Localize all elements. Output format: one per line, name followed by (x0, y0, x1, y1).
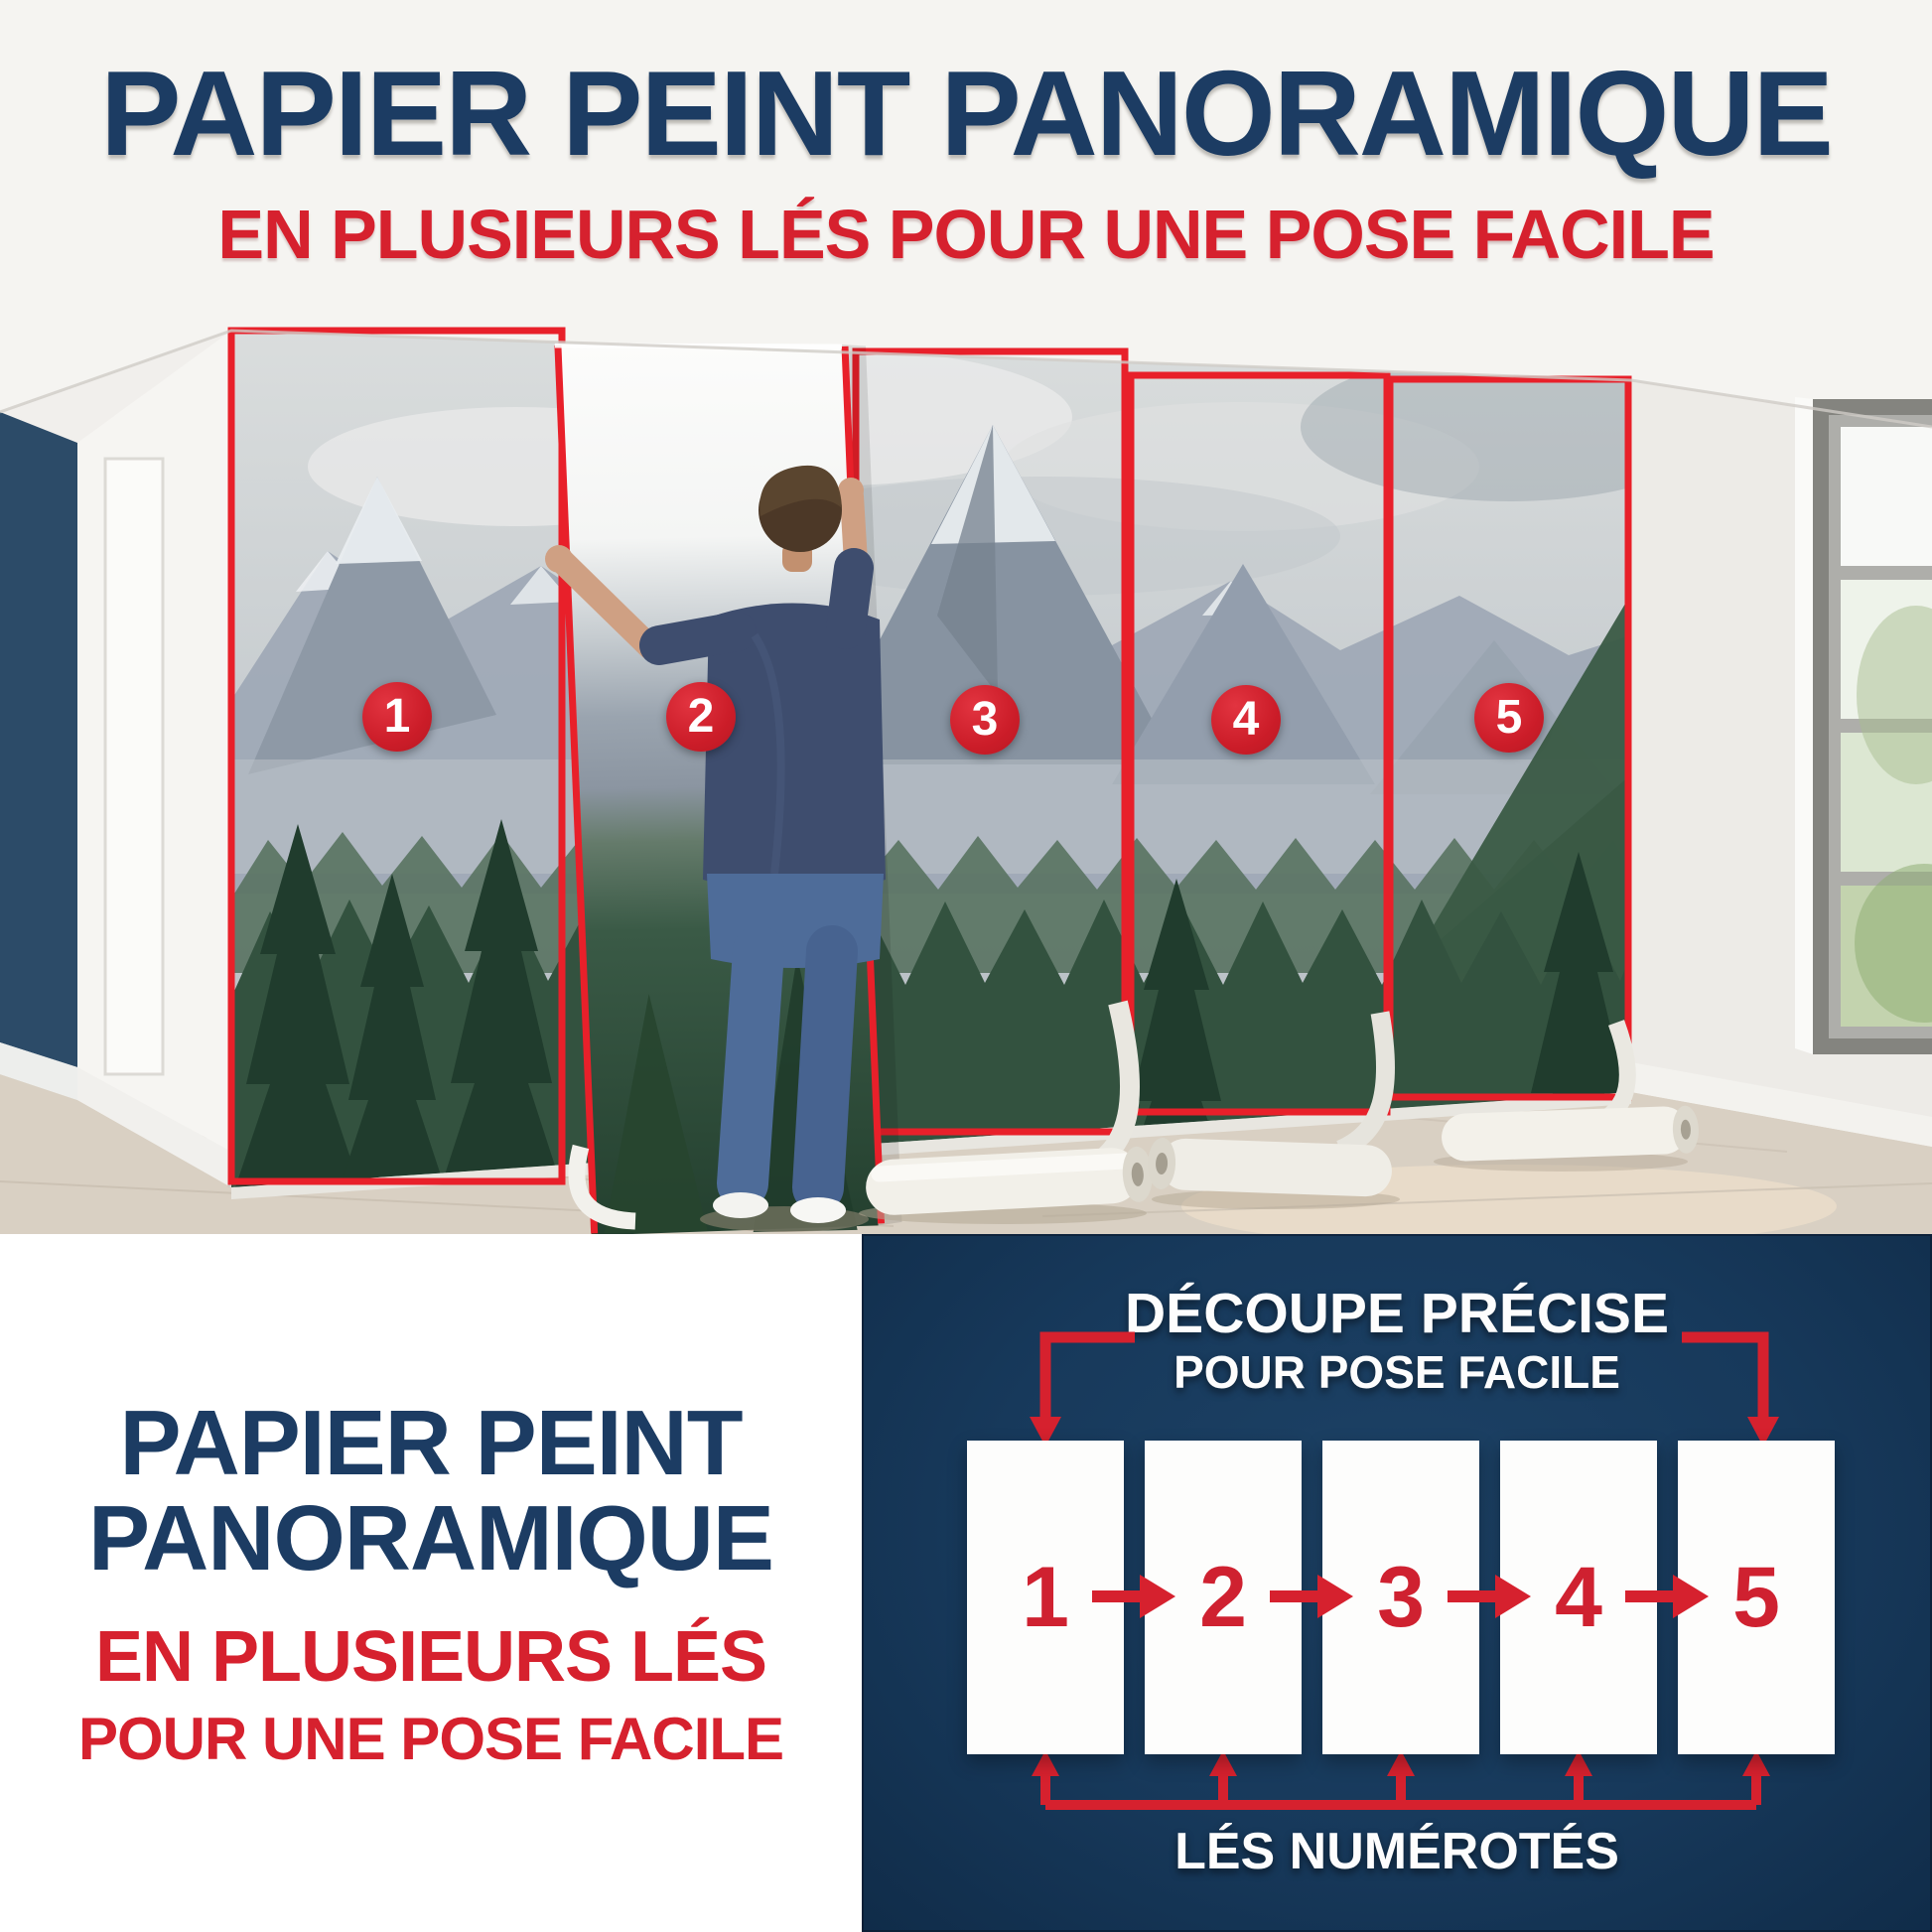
diagram-strip-number: 2 (1199, 1549, 1247, 1647)
diagram-caption: LÉS NUMÉROTÉS (862, 1822, 1932, 1881)
bottom-subtitle-line2: POUR UNE POSE FACILE (0, 1705, 862, 1773)
corner-arrow-left-icon (1045, 1337, 1135, 1417)
diagram-strip-number: 3 (1377, 1549, 1425, 1647)
room-photo (0, 0, 1932, 1234)
infographic-root: PAPIER PEINT PANORAMIQUE EN PLUSIEURS LÉ… (0, 0, 1932, 1932)
arrow-right-icon (1448, 1571, 1531, 1622)
left-hand (545, 545, 573, 573)
strip-badge-1: 1 (362, 682, 432, 752)
door (105, 459, 163, 1074)
corner-arrow-right-icon (1682, 1337, 1763, 1417)
arrow-right-icon (1625, 1571, 1709, 1622)
arrow-right-icon (1270, 1571, 1353, 1622)
bottom-title-line1: PAPIER PEINT (0, 1390, 862, 1496)
right-hand (838, 478, 864, 503)
strip-badge-4: 4 (1211, 685, 1281, 755)
strip-badge-5: 5 (1474, 683, 1544, 753)
strip-badge-3: 3 (950, 685, 1020, 755)
bottom-subtitle-line1: EN PLUSIEURS LÉS (0, 1616, 862, 1698)
mountain-mural (231, 328, 1718, 1201)
sneaker (790, 1197, 846, 1223)
arrow-right-icon (1092, 1571, 1175, 1622)
bottom-title-line2: PANORAMIQUE (0, 1485, 862, 1591)
strip-badge-2: 2 (666, 682, 736, 752)
window (1795, 397, 1932, 1054)
diagram-strip-number: 5 (1732, 1549, 1780, 1647)
diagram-strip-number: 1 (1022, 1549, 1069, 1647)
sneaker (713, 1192, 768, 1218)
numbering-bracket (1045, 1772, 1756, 1805)
numbered-strips-diagram: DÉCOUPE PRÉCISE POUR POSE FACILE (862, 1234, 1932, 1932)
left-walls (0, 331, 231, 1187)
diagram-strip-number: 4 (1555, 1549, 1602, 1647)
page-title: PAPIER PEINT PANORAMIQUE (0, 44, 1932, 183)
page-subtitle: EN PLUSIEURS LÉS POUR UNE POSE FACILE (0, 195, 1932, 274)
